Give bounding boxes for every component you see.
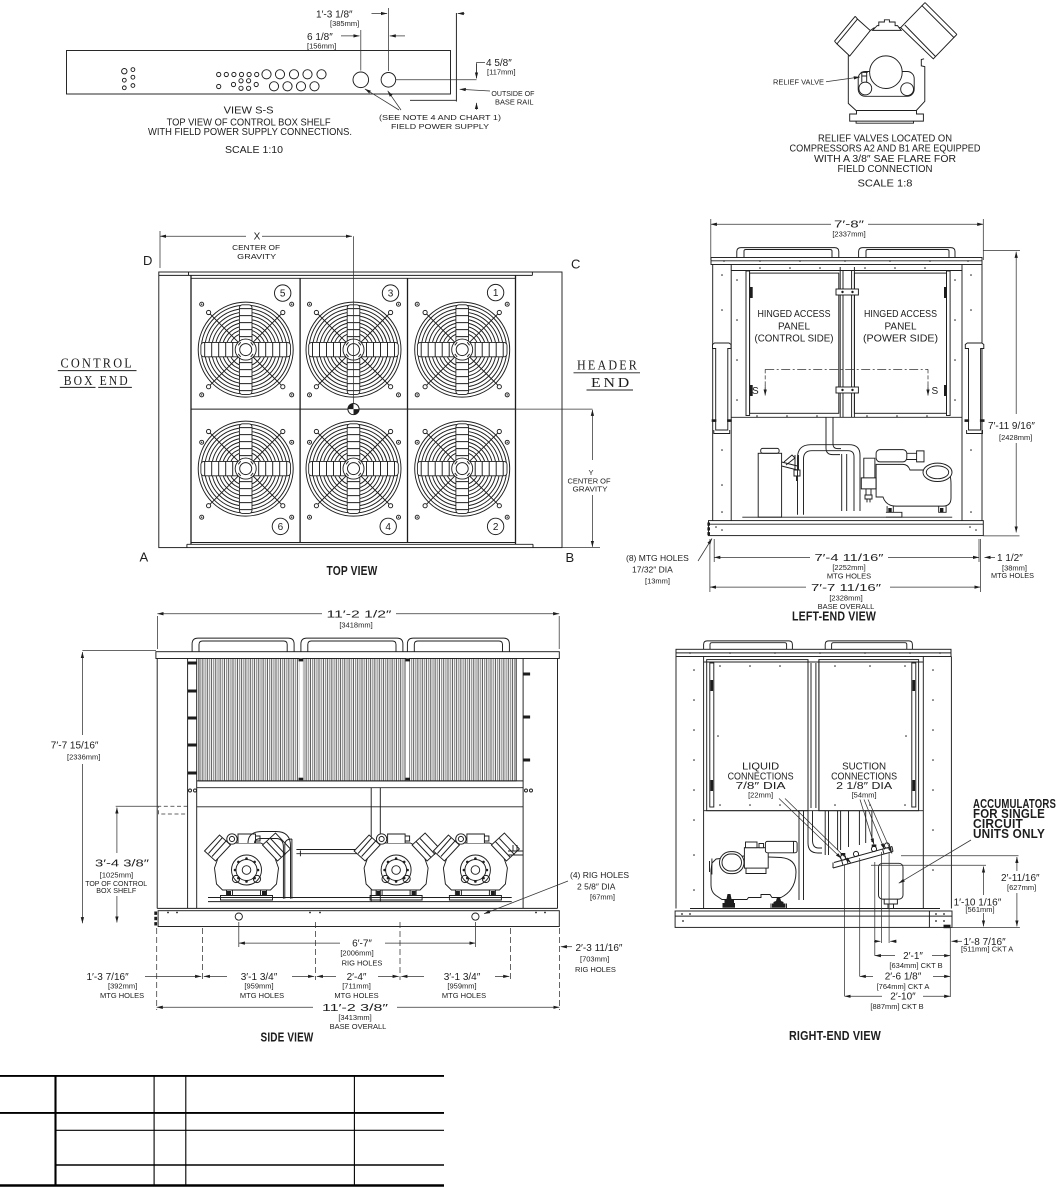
svg-text:SCALE 1:10: SCALE 1:10: [225, 145, 283, 156]
svg-text:[22mm]: [22mm]: [748, 790, 773, 799]
svg-text:RIGHT-END VIEW: RIGHT-END VIEW: [789, 1029, 881, 1043]
svg-text:17/32″ DIA: 17/32″ DIA: [632, 565, 673, 575]
svg-text:A: A: [140, 550, 149, 565]
svg-text:2′-3 11/16″: 2′-3 11/16″: [576, 943, 623, 954]
svg-text:MTG HOLES: MTG HOLES: [100, 991, 144, 1000]
svg-text:[54mm]: [54mm]: [852, 790, 877, 799]
svg-text:[3413mm]: [3413mm]: [338, 1013, 371, 1022]
svg-text:[959mm]: [959mm]: [244, 982, 273, 991]
svg-text:[634mm] CKT B: [634mm] CKT B: [889, 961, 942, 970]
svg-text:3: 3: [388, 289, 394, 300]
svg-text:FIELD POWER SUPPLY: FIELD POWER SUPPLY: [391, 122, 489, 131]
svg-text:SIDE VIEW: SIDE VIEW: [261, 1031, 314, 1045]
svg-text:[3418mm]: [3418mm]: [339, 621, 372, 630]
svg-text:MTG HOLES: MTG HOLES: [991, 571, 1034, 580]
svg-text:1: 1: [493, 288, 499, 299]
svg-text:BOX SHELF: BOX SHELF: [96, 886, 136, 895]
svg-text:FIELD CONNECTION: FIELD CONNECTION: [838, 164, 933, 175]
svg-text:[2428mm]: [2428mm]: [999, 433, 1032, 442]
svg-text:B: B: [566, 550, 575, 565]
svg-text:[156mm]: [156mm]: [307, 42, 336, 51]
svg-text:7′-7 15/16″: 7′-7 15/16″: [51, 741, 99, 752]
svg-text:SCALE 1:8: SCALE 1:8: [858, 179, 913, 190]
svg-text:C: C: [571, 257, 580, 272]
svg-text:HINGED ACCESS: HINGED ACCESS: [758, 309, 831, 320]
svg-text:PANEL: PANEL: [778, 322, 810, 333]
svg-text:[67mm]: [67mm]: [590, 893, 615, 902]
svg-text:UNITS ONLY: UNITS ONLY: [973, 827, 1045, 841]
svg-text:HEADER: HEADER: [577, 359, 639, 374]
svg-text:MTG HOLES: MTG HOLES: [240, 991, 284, 1000]
svg-text:7′-11 9/16″: 7′-11 9/16″: [988, 421, 1035, 432]
svg-text:[2337mm]: [2337mm]: [832, 230, 865, 239]
svg-text:PANEL: PANEL: [885, 322, 917, 333]
svg-text:(4) RIG HOLES: (4) RIG HOLES: [570, 870, 629, 880]
svg-text:GRAVITY: GRAVITY: [237, 252, 276, 261]
svg-text:[627mm]: [627mm]: [1007, 883, 1036, 892]
svg-text:S: S: [932, 386, 939, 397]
svg-text:[2336mm]: [2336mm]: [67, 753, 100, 762]
svg-text:VIEW S-S: VIEW S-S: [224, 106, 274, 117]
svg-text:3′-4 3/8″: 3′-4 3/8″: [95, 859, 150, 870]
svg-text:[887mm] CKT B: [887mm] CKT B: [870, 1002, 923, 1011]
svg-text:HINGED ACCESS: HINGED ACCESS: [864, 309, 937, 320]
svg-text:GRAVITY: GRAVITY: [573, 485, 608, 494]
svg-text:[392mm]: [392mm]: [108, 982, 137, 991]
svg-text:MTG HOLES: MTG HOLES: [827, 572, 871, 581]
svg-text:5: 5: [280, 289, 286, 300]
svg-text:2 5/8″ DIA: 2 5/8″ DIA: [577, 882, 616, 892]
svg-text:11′-2 1/2″: 11′-2 1/2″: [327, 609, 393, 620]
svg-text:[2006mm]: [2006mm]: [340, 949, 373, 958]
svg-text:[561mm]: [561mm]: [965, 905, 994, 914]
svg-text:BASE OVERALL: BASE OVERALL: [330, 1022, 387, 1031]
svg-text:S: S: [752, 386, 759, 397]
svg-text:CENTER OF: CENTER OF: [232, 243, 280, 252]
svg-text:CONTROL: CONTROL: [61, 357, 135, 372]
svg-text:[511mm] CKT A: [511mm] CKT A: [961, 945, 1013, 954]
svg-text:[764mm] CKT A: [764mm] CKT A: [877, 982, 930, 991]
svg-text:BOX END: BOX END: [64, 374, 130, 389]
svg-text:[13mm]: [13mm]: [645, 577, 670, 586]
svg-text:4: 4: [385, 522, 391, 533]
svg-text:RIG HOLES: RIG HOLES: [342, 958, 383, 967]
svg-text:(8) MTG HOLES: (8) MTG HOLES: [626, 553, 689, 563]
svg-text:D: D: [143, 253, 152, 268]
svg-text:(SEE NOTE 4 AND CHART 1): (SEE NOTE 4 AND CHART 1): [379, 113, 502, 122]
svg-text:[703mm]: [703mm]: [580, 954, 609, 963]
svg-text:(POWER SIDE): (POWER SIDE): [863, 334, 938, 345]
svg-text:[2252mm]: [2252mm]: [832, 563, 865, 572]
svg-text:END: END: [591, 376, 632, 391]
svg-text:6: 6: [278, 522, 284, 533]
svg-text:[385mm]: [385mm]: [330, 19, 359, 28]
svg-text:LEFT-END VIEW: LEFT-END VIEW: [792, 610, 876, 624]
svg-text:[959mm]: [959mm]: [447, 982, 476, 991]
svg-text:BASE RAIL: BASE RAIL: [495, 97, 534, 106]
svg-text:[711mm]: [711mm]: [342, 982, 371, 991]
svg-text:MTG HOLES: MTG HOLES: [442, 991, 486, 1000]
svg-text:2: 2: [493, 522, 499, 533]
svg-text:TOP VIEW: TOP VIEW: [327, 564, 378, 578]
svg-text:RELIEF VALVE: RELIEF VALVE: [773, 78, 824, 87]
svg-text:(CONTROL SIDE): (CONTROL SIDE): [755, 334, 834, 345]
svg-text:RIG HOLES: RIG HOLES: [575, 965, 616, 974]
svg-text:WITH FIELD POWER SUPPLY CONNEC: WITH FIELD POWER SUPPLY CONNECTIONS.: [148, 127, 352, 138]
svg-text:X: X: [254, 232, 261, 243]
svg-text:[117mm]: [117mm]: [487, 68, 516, 77]
svg-text:MTG HOLES: MTG HOLES: [334, 991, 378, 1000]
